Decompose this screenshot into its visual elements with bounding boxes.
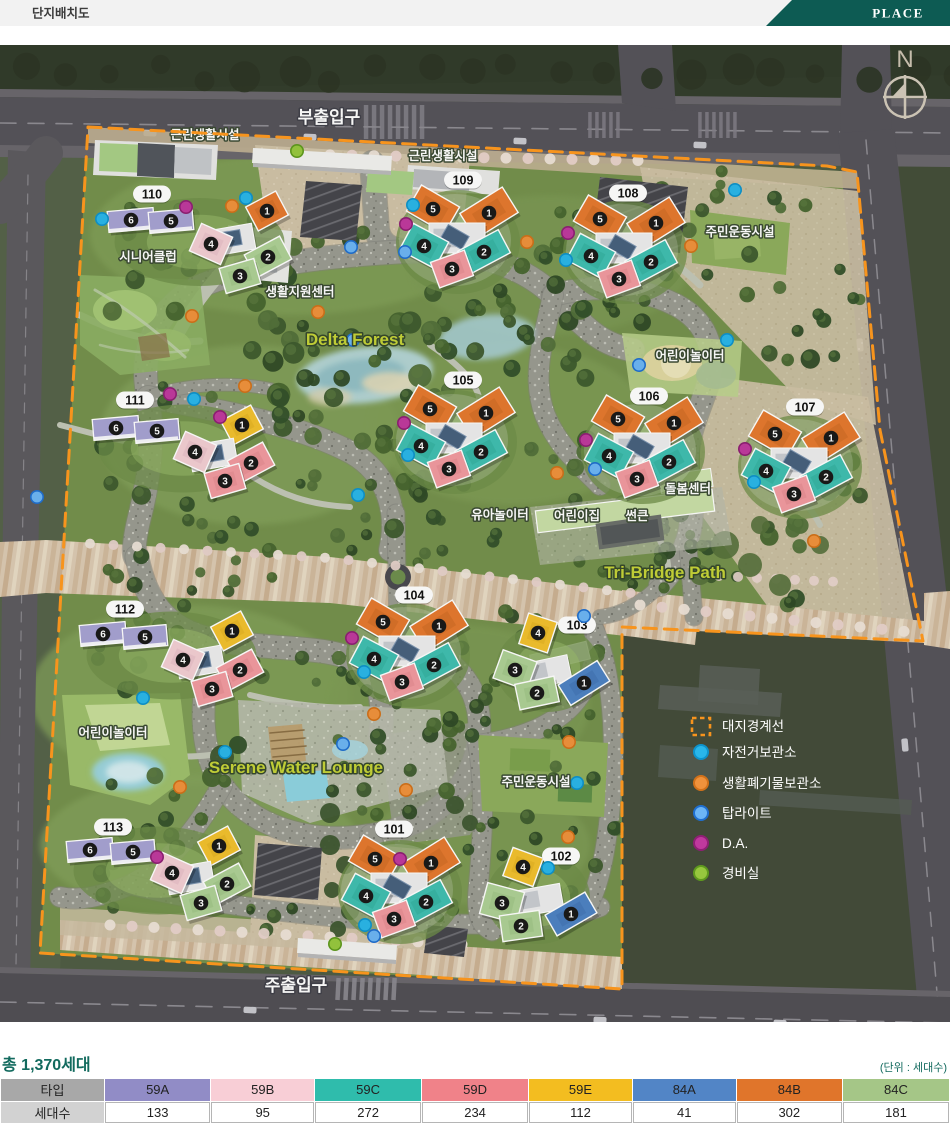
svg-text:경비실: 경비실	[722, 866, 759, 881]
svg-text:자전거보관소: 자전거보관소	[722, 745, 797, 760]
svg-text:생활폐기물보관소: 생활폐기물보관소	[722, 776, 821, 791]
svg-text:대지경계선: 대지경계선	[722, 719, 784, 734]
svg-text:PLACE: PLACE	[872, 6, 924, 21]
svg-text:탑라이트: 탑라이트	[722, 806, 772, 821]
svg-text:N: N	[896, 46, 913, 73]
svg-text:D.A.: D.A.	[722, 836, 748, 851]
svg-text:단지배치도: 단지배치도	[32, 6, 90, 21]
